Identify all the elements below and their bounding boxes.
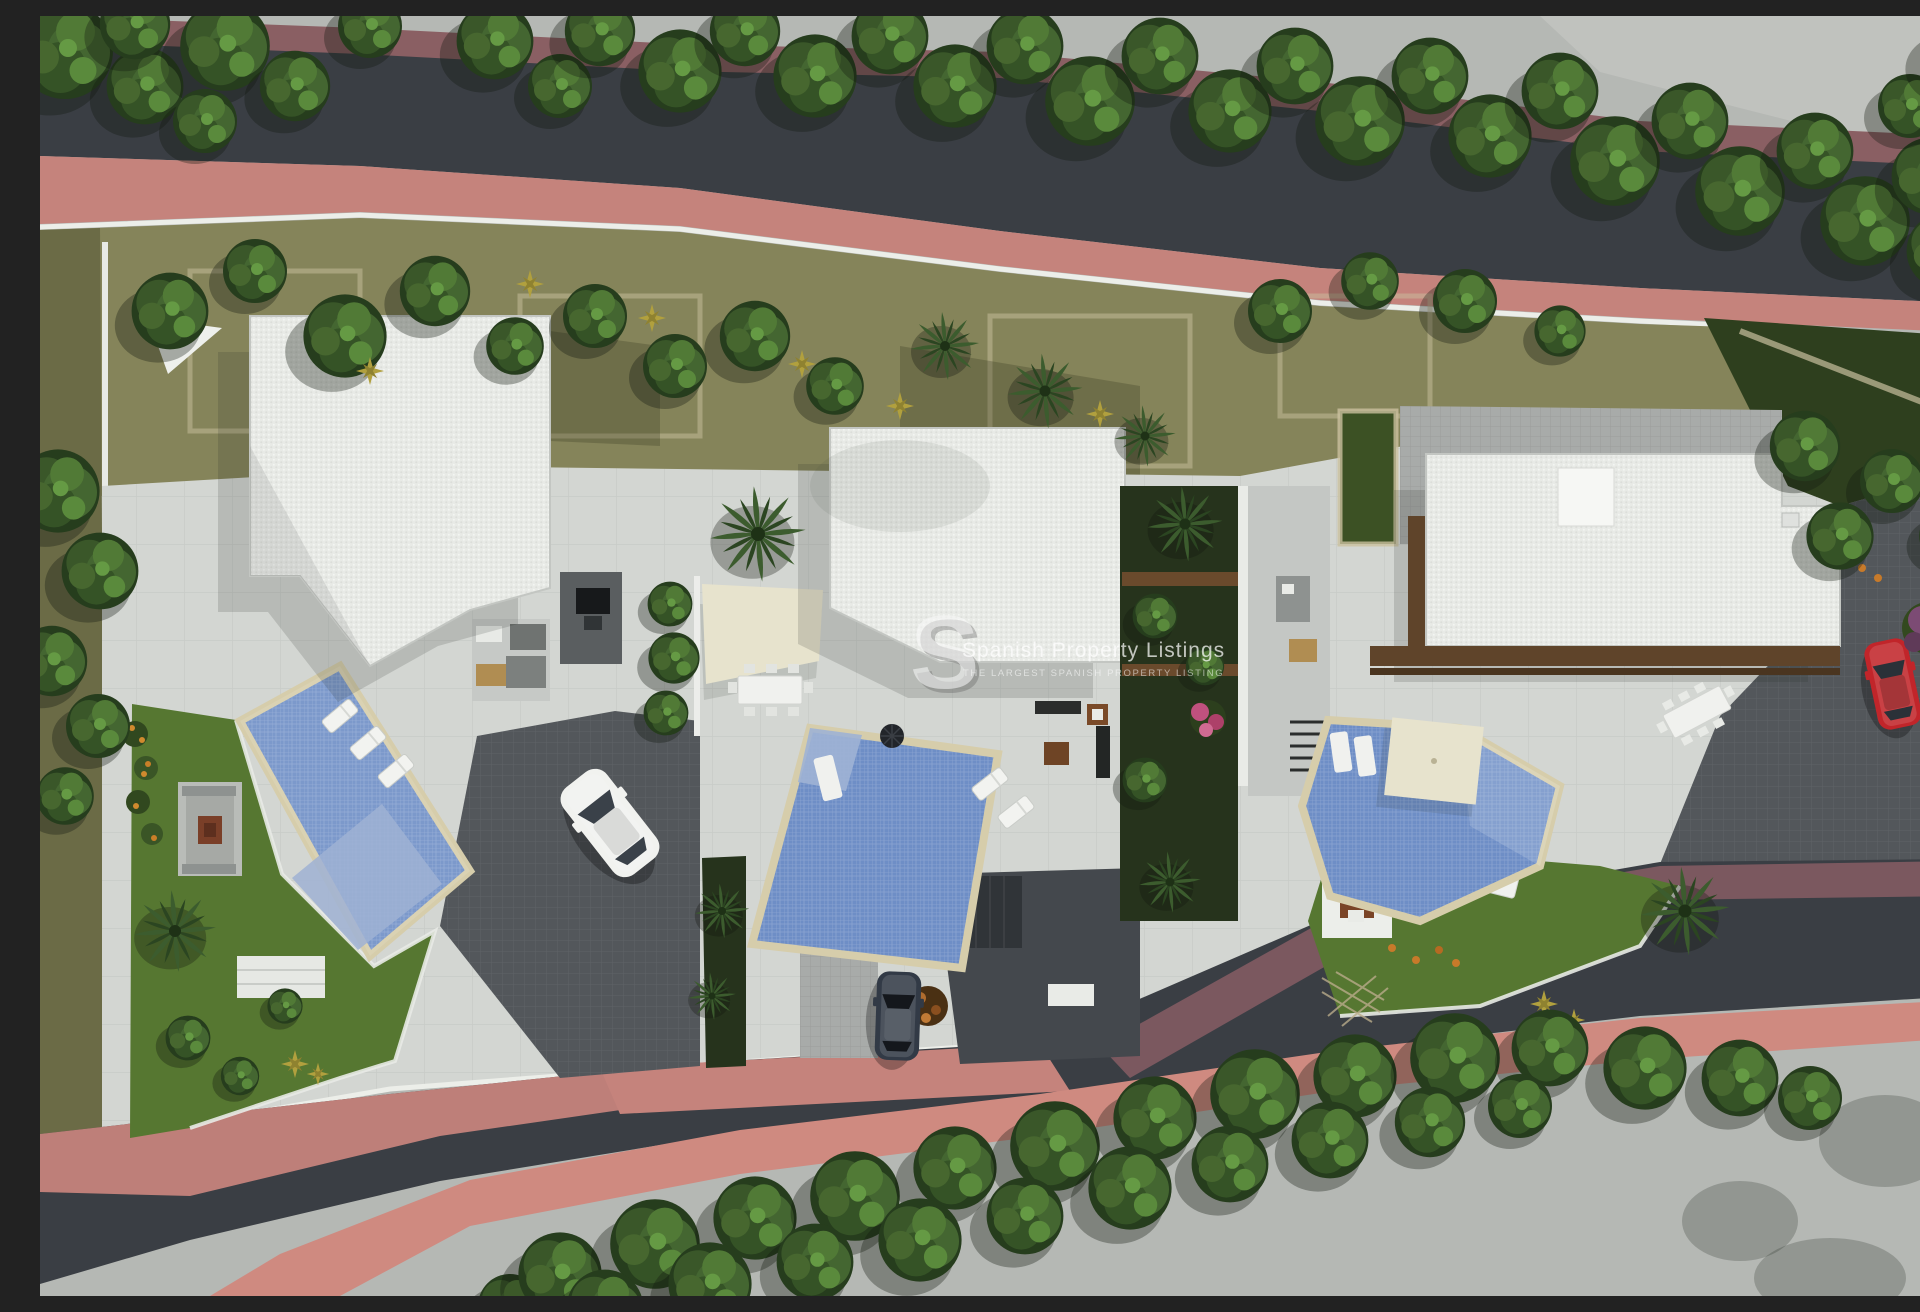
dark-umbrella (880, 724, 904, 748)
roof-skylight (1558, 468, 1614, 526)
aerial-site-plan-render: S S Spanish Property Listings THE LARGES… (40, 16, 1920, 1296)
cream-parasol (1376, 717, 1484, 816)
villa-left-firepit-lounge (178, 782, 242, 876)
site-plan-canvas: S S Spanish Property Listings THE LARGES… (40, 16, 1920, 1296)
roof-ac-unit (1782, 513, 1799, 527)
outdoor-counter (1276, 576, 1310, 622)
entry-planter (1340, 411, 1396, 544)
coffee-table (476, 664, 506, 686)
villa-middle-garden-strip (702, 856, 746, 1068)
villa-left-outdoor-kitchen (560, 572, 622, 664)
corridor-wall (1238, 486, 1248, 786)
watermark-tagline: THE LARGEST SPANISH PROPERTY LISTING (963, 668, 1224, 679)
watermark-title: Spanish Property Listings (962, 639, 1225, 662)
court-bench (1048, 984, 1094, 1006)
timber-deck-bottom (1370, 646, 1840, 666)
ottoman (1289, 639, 1317, 662)
